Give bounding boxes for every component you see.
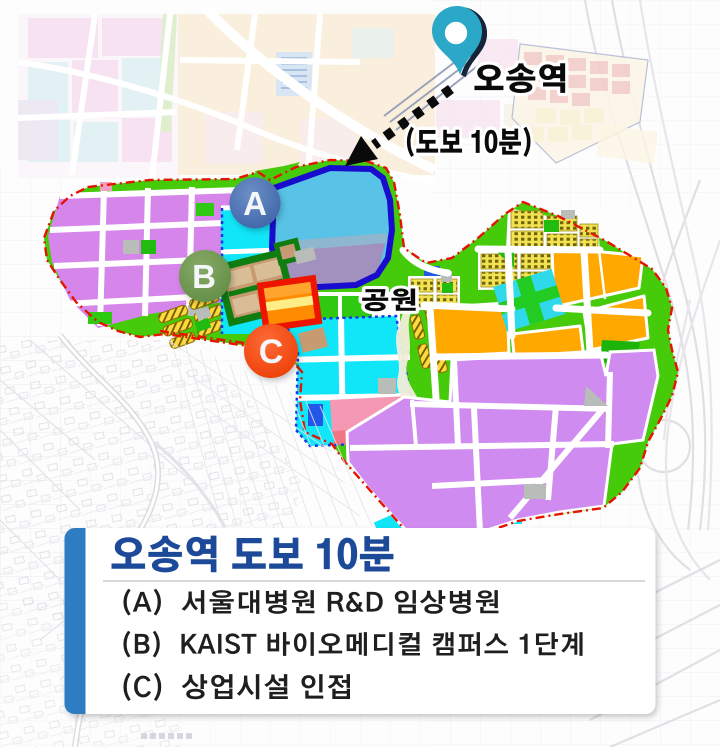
- svg-text:A: A: [243, 185, 267, 222]
- svg-text:B: B: [192, 258, 216, 295]
- svg-text:C: C: [259, 333, 284, 371]
